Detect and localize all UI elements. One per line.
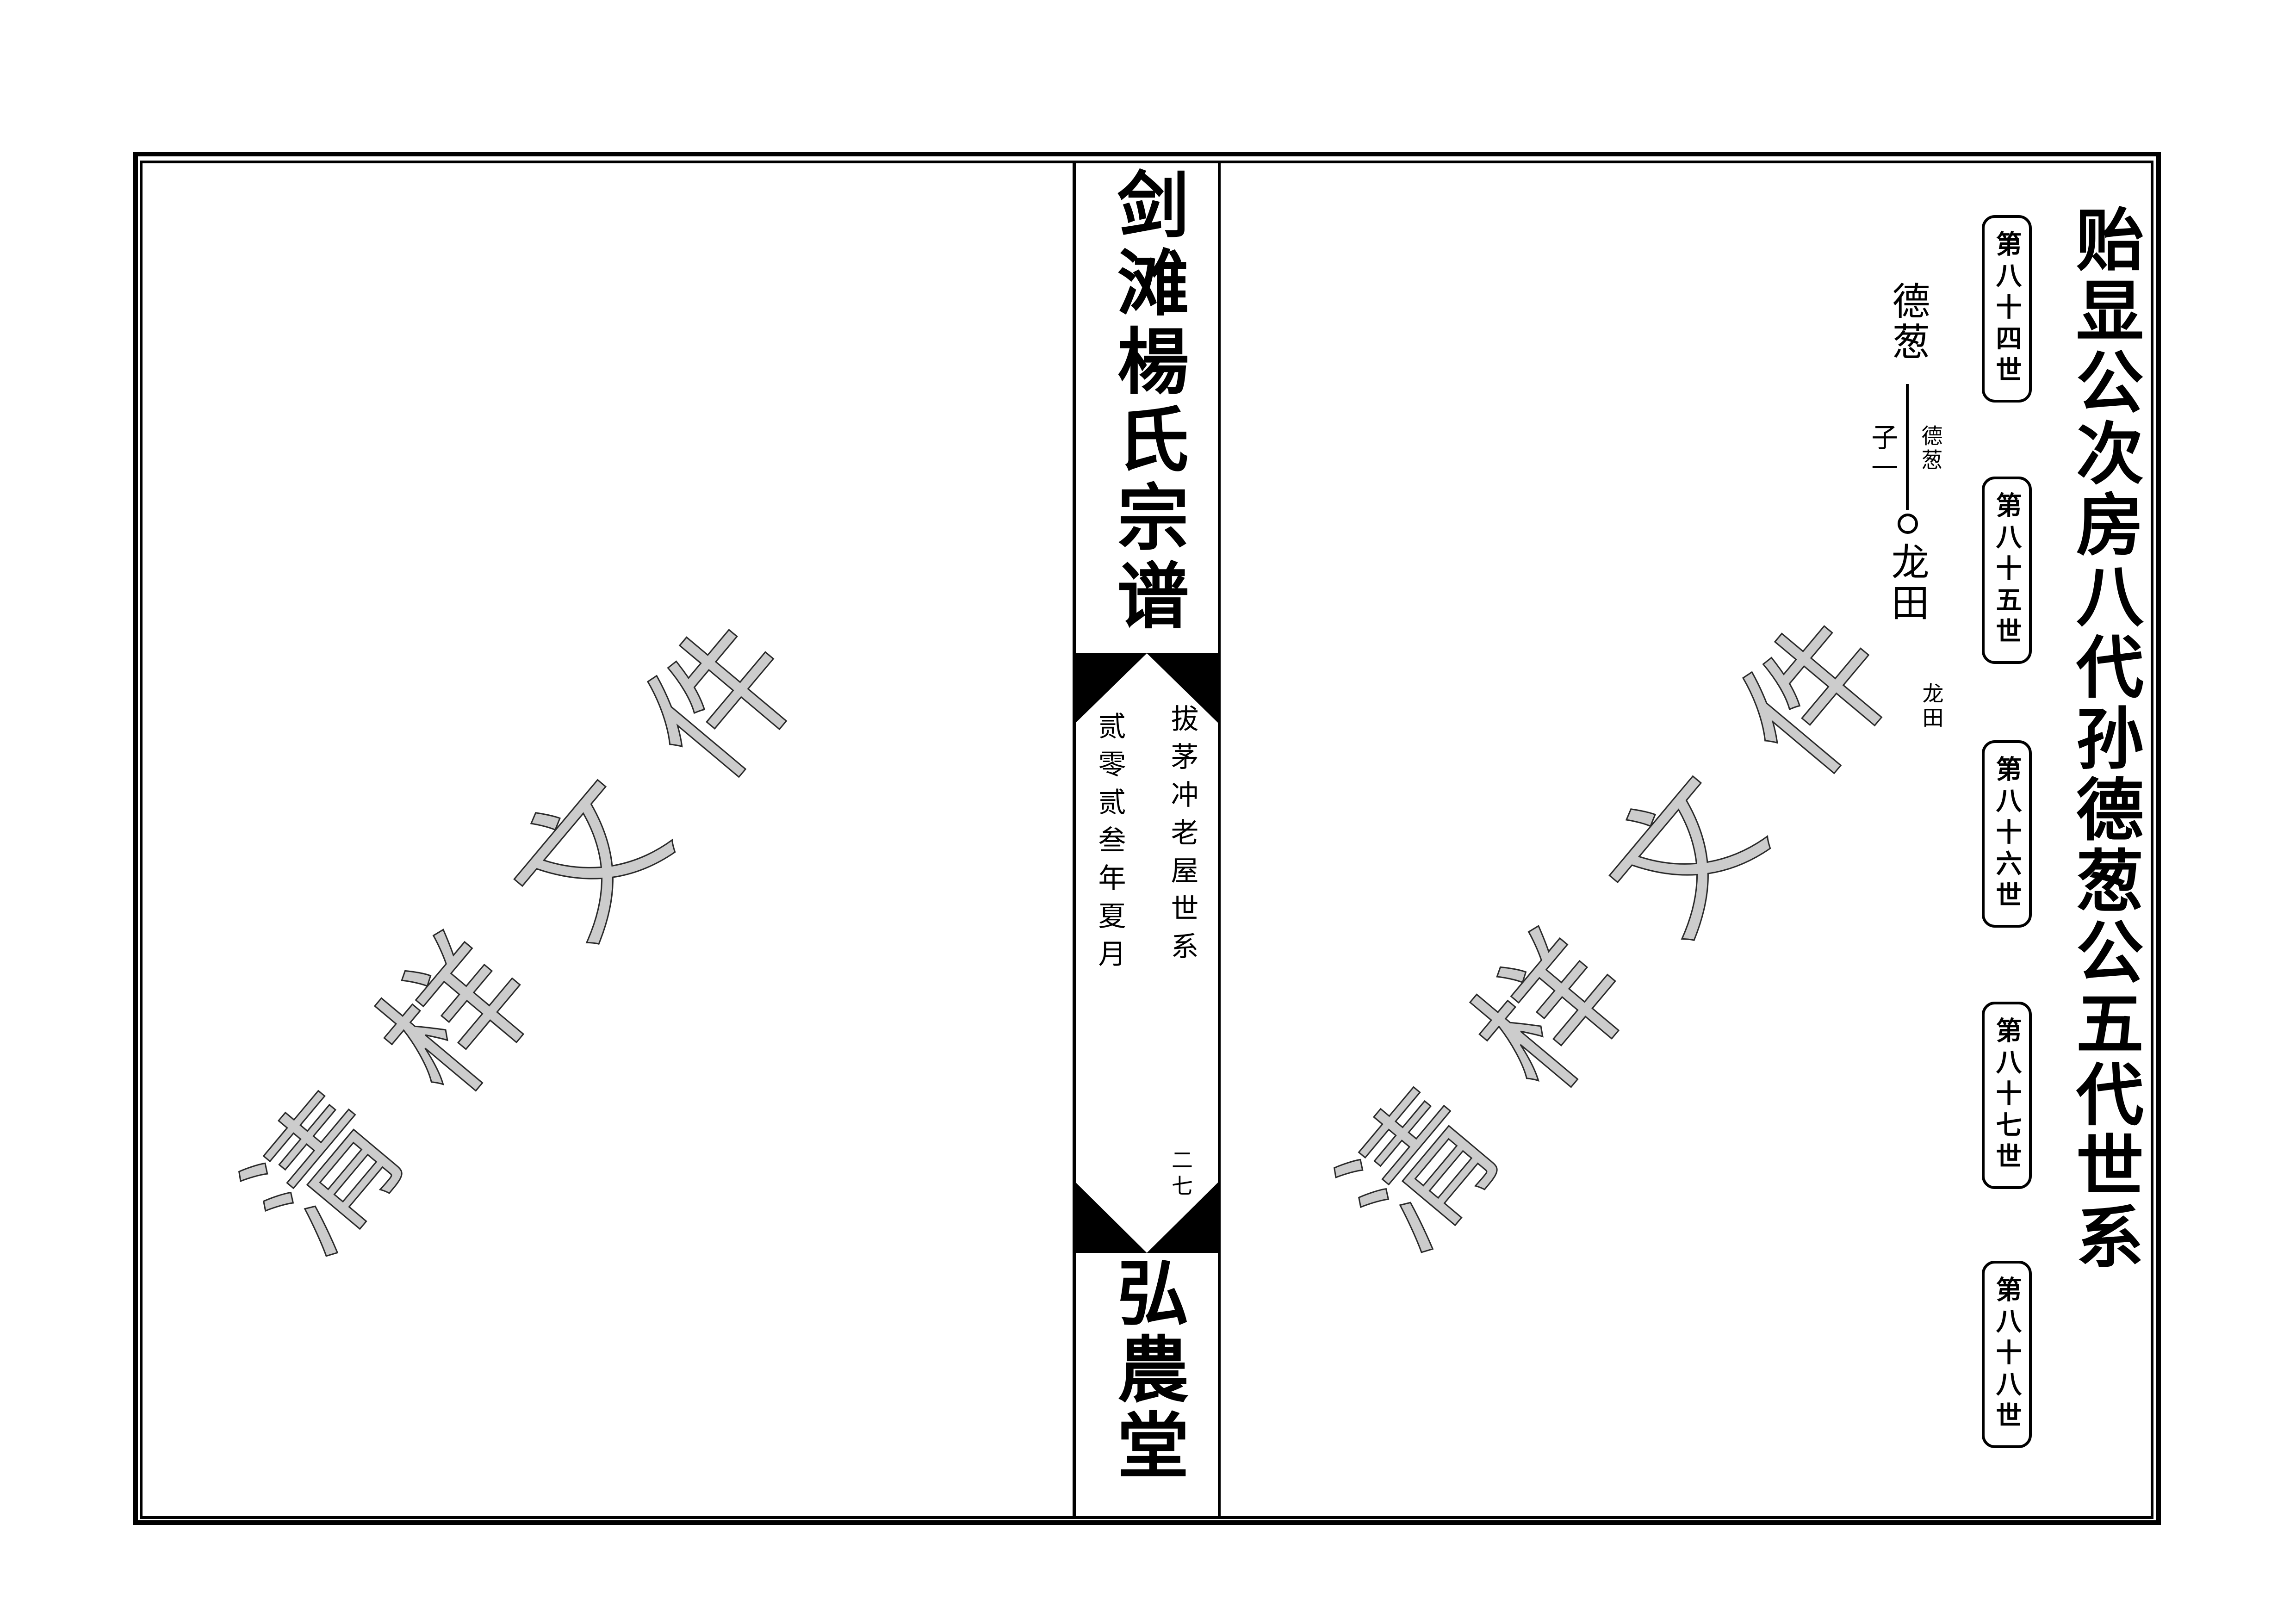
tree-children-count-label: 子一	[1866, 423, 1899, 484]
spine-right-rule	[1218, 163, 1221, 1516]
chapter-title: 贻显公次房八代孙德葱公五代世系	[2068, 204, 2140, 1273]
generation-label: 第八十四世	[1994, 230, 2020, 388]
spine-page-number: 二七	[1170, 1149, 1191, 1201]
generation-box-87: 第八十七世	[1982, 1002, 2032, 1189]
spine-date-note: 贰零贰叁年夏月	[1096, 712, 1123, 977]
generation-label: 第八十七世	[1994, 1017, 2020, 1174]
tree-descendant-note: 龙田	[1919, 682, 1944, 731]
tree-ancestor-name: 德葱	[1887, 281, 1927, 363]
tree-descent-line	[1906, 384, 1909, 510]
generation-label: 第八十六世	[1994, 756, 2020, 913]
generation-box-86: 第八十六世	[1982, 740, 2032, 928]
spine-book-title: 剑滩楊氏宗谱	[1108, 167, 1185, 637]
spine-section-note: 拔茅冲老屋世系	[1168, 704, 1196, 970]
spine-left-rule	[1073, 163, 1076, 1516]
generation-box-85: 第八十五世	[1982, 477, 2032, 664]
spine-hall-name: 弘農堂	[1108, 1256, 1185, 1485]
spine-ribbon-bottom	[1076, 1183, 1218, 1253]
generation-box-88: 第八十八世	[1982, 1261, 2032, 1448]
tree-descendant-name: 龙田	[1886, 542, 1926, 624]
generation-label: 第八十五世	[1994, 492, 2020, 649]
generation-label: 第八十八世	[1994, 1276, 2020, 1433]
generation-box-84: 第八十四世	[1982, 215, 2032, 403]
person-node-circle	[1898, 514, 1918, 534]
tree-ancestor-note: 德葱	[1918, 425, 1943, 473]
